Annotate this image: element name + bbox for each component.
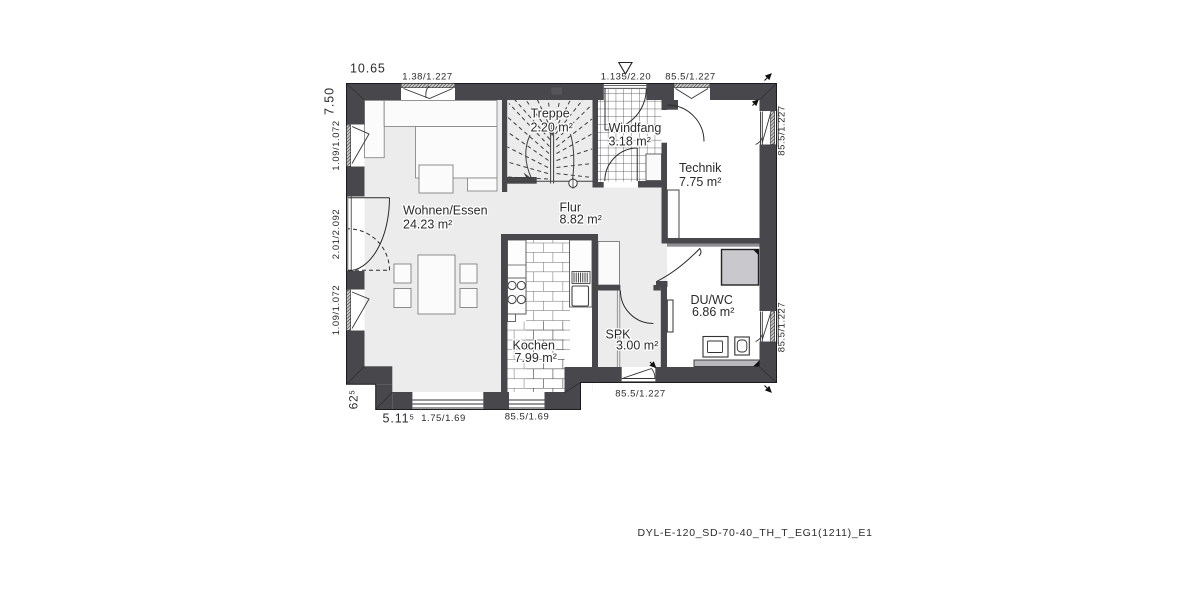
svg-text:7.99 m²: 7.99 m²	[515, 351, 557, 365]
svg-text:DYL-E-120_SD-70-40_TH_T_EG1(12: DYL-E-120_SD-70-40_TH_T_EG1(1211)_E1	[638, 527, 873, 539]
svg-text:1.09/1.072: 1.09/1.072	[331, 285, 342, 335]
svg-text:85.5/1.227: 85.5/1.227	[665, 72, 715, 83]
svg-text:1.135/2.20: 1.135/2.20	[601, 72, 651, 83]
svg-text:Technik: Technik	[679, 161, 722, 175]
svg-text:10.65: 10.65	[350, 62, 386, 76]
svg-text:2.01/2.092: 2.01/2.092	[331, 209, 342, 259]
svg-text:2.20 m²: 2.20 m²	[531, 121, 573, 135]
svg-text:1.38/1.227: 1.38/1.227	[402, 72, 452, 83]
svg-text:7.75 m²: 7.75 m²	[679, 175, 721, 189]
svg-text:1.09/1.072: 1.09/1.072	[331, 120, 342, 170]
svg-text:8.82 m²: 8.82 m²	[560, 213, 602, 227]
svg-text:7.50: 7.50	[323, 87, 337, 115]
svg-text:24.23 m²: 24.23 m²	[403, 218, 452, 232]
svg-text:3.00 m²: 3.00 m²	[616, 339, 658, 353]
svg-text:Wohnen/Essen: Wohnen/Essen	[403, 204, 488, 218]
svg-text:3.18 m²: 3.18 m²	[609, 135, 651, 149]
svg-text:85.5/1.69: 85.5/1.69	[505, 412, 550, 423]
svg-text:85.5/1.227: 85.5/1.227	[777, 302, 788, 352]
svg-text:1.75/1.69: 1.75/1.69	[421, 413, 466, 424]
svg-text:Windfang: Windfang	[609, 121, 662, 135]
svg-text:85.5/1.227: 85.5/1.227	[615, 389, 665, 400]
svg-text:6.86 m²: 6.86 m²	[692, 305, 734, 319]
svg-text:Treppe: Treppe	[531, 107, 570, 121]
svg-text:85.5/1.227: 85.5/1.227	[777, 105, 788, 155]
